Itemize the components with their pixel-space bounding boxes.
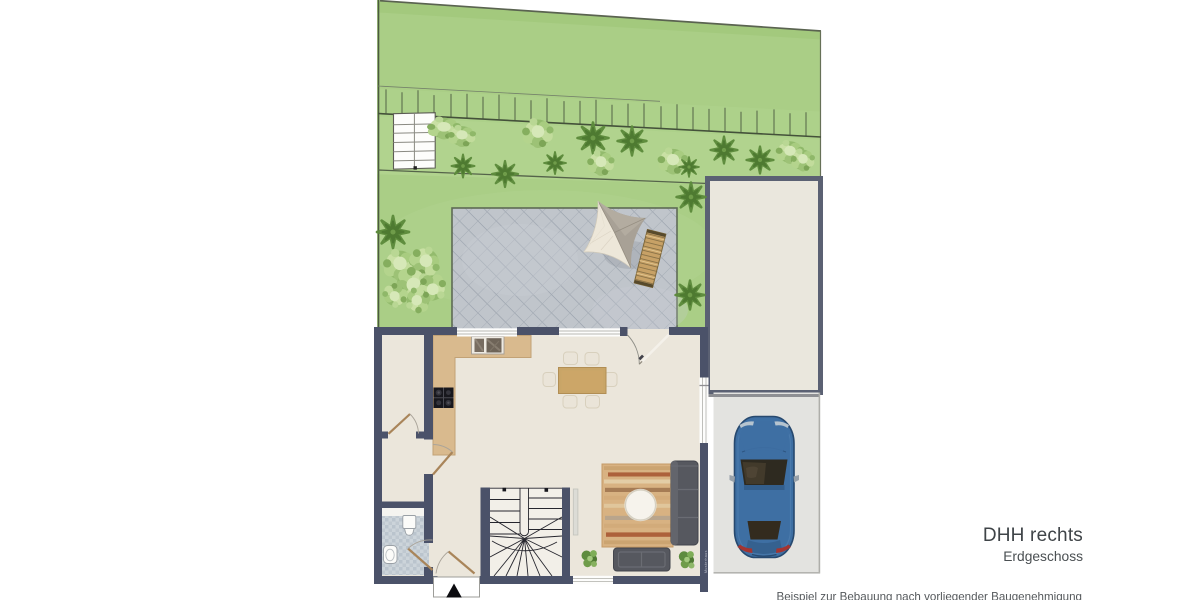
svg-text:DHH rechts: DHH rechts <box>983 525 1083 546</box>
svg-text:Musterhaus: Musterhaus <box>704 550 708 573</box>
svg-text:Beispiel zur Bebauung nach vor: Beispiel zur Bebauung nach vorliegender … <box>776 591 1082 600</box>
svg-text:Erdgeschoss: Erdgeschoss <box>1003 549 1083 564</box>
